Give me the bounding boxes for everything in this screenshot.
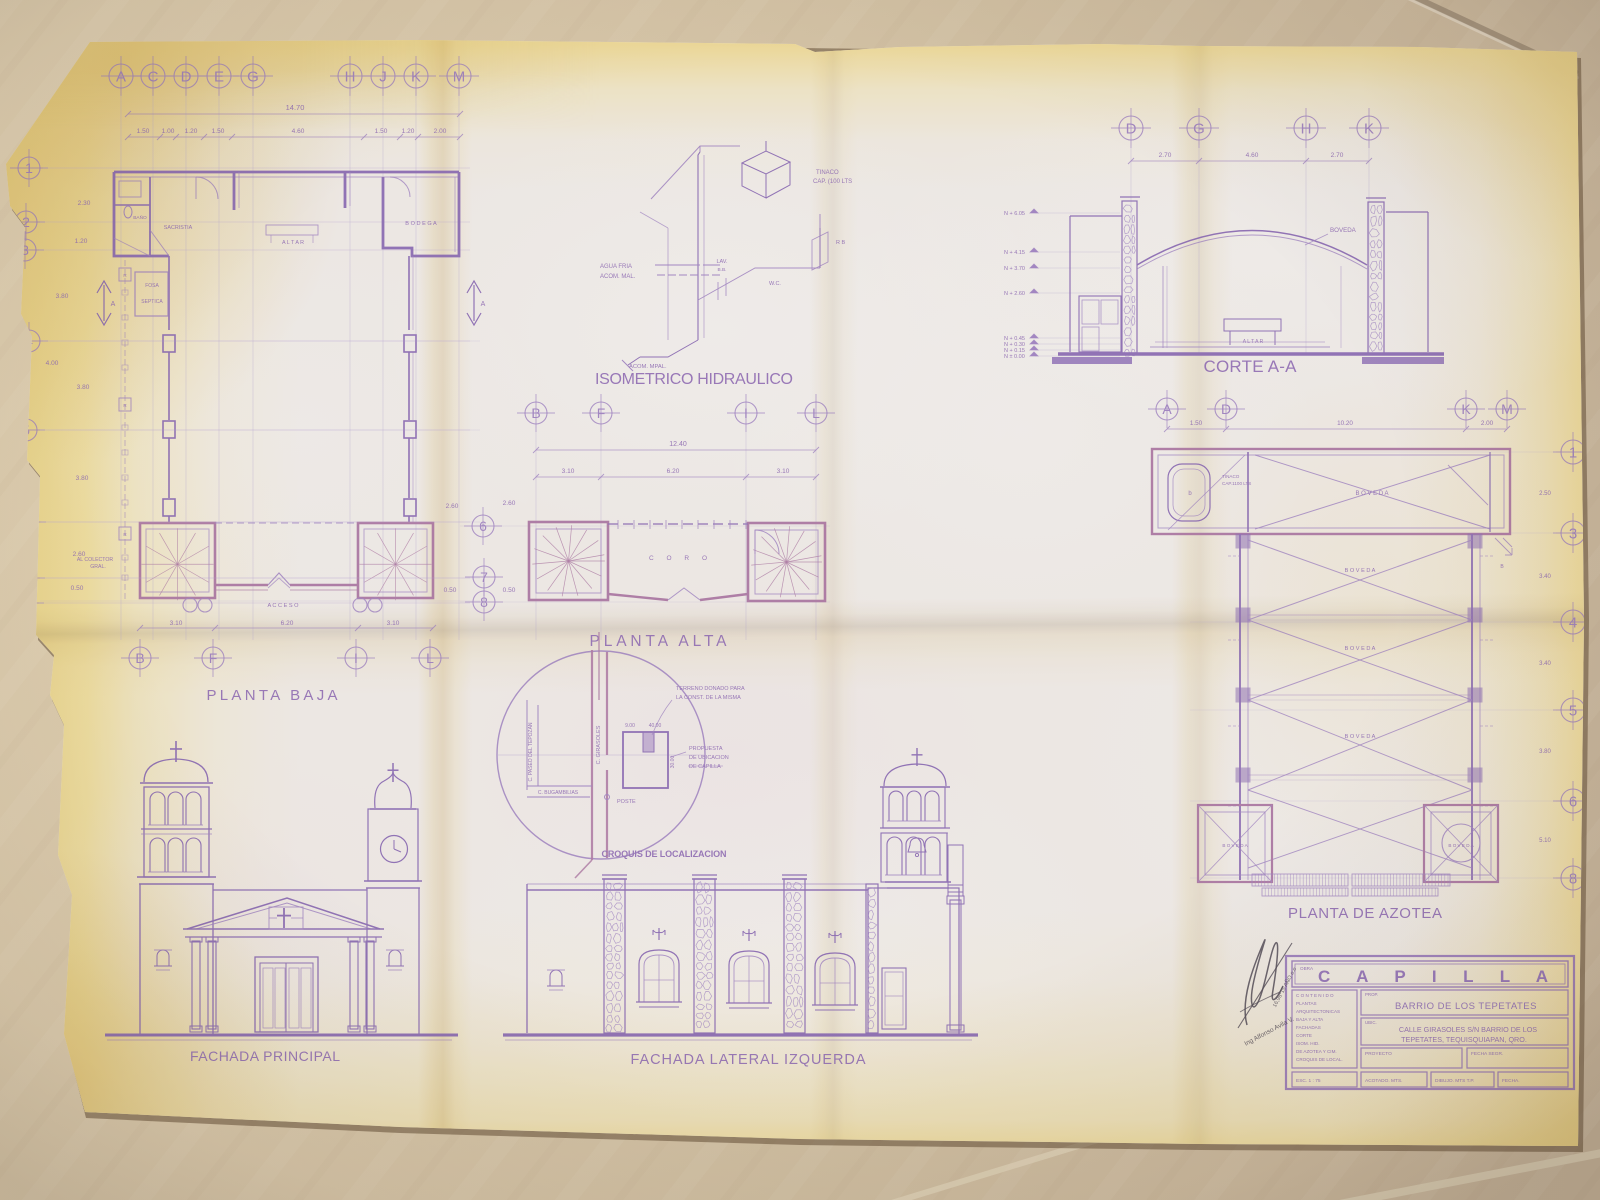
svg-text:C. GIRASOLES: C. GIRASOLES [596, 725, 602, 764]
svg-text:C O N T E N I D O: C O N T E N I D O [1296, 993, 1334, 998]
svg-text:A: A [481, 301, 486, 308]
svg-text:PROP.: PROP. [1365, 992, 1378, 997]
svg-text:CAP. (100 LTS: CAP. (100 LTS [813, 179, 852, 185]
svg-text:B O D E G A: B O D E G A [405, 221, 437, 227]
svg-text:OBRA: OBRA [1300, 966, 1314, 971]
svg-text:2.50: 2.50 [1539, 491, 1551, 497]
svg-text:1.20: 1.20 [185, 128, 198, 135]
svg-text:3.10: 3.10 [777, 468, 790, 475]
svg-text:R B: R B [836, 240, 846, 246]
svg-text:3: 3 [1569, 525, 1577, 542]
svg-text:1.50: 1.50 [375, 128, 388, 135]
svg-text:N + 2.60: N + 2.60 [1004, 291, 1025, 297]
svg-text:CORTE A-A: CORTE A-A [1204, 357, 1298, 376]
svg-text:CROQUIS DE LOCALIZACION: CROQUIS DE LOCALIZACION [602, 849, 727, 859]
svg-text:B O V E D A: B O V E D A [1345, 568, 1376, 574]
svg-text:K: K [1364, 120, 1374, 137]
svg-text:TINACO: TINACO [1222, 474, 1240, 479]
svg-text:4.60: 4.60 [1246, 152, 1259, 159]
svg-text:2.60: 2.60 [503, 500, 516, 507]
svg-text:ESC. 1 : 75: ESC. 1 : 75 [1296, 1078, 1321, 1084]
svg-text:PLANTA ALTA: PLANTA ALTA [590, 633, 728, 650]
svg-text:6.20: 6.20 [281, 620, 294, 627]
svg-text:3.80: 3.80 [77, 384, 90, 391]
svg-text:A: A [111, 301, 116, 308]
svg-text:G: G [247, 68, 259, 85]
svg-text:TEPETATES, TEQUISQUIAPAN, QRO: TEPETATES, TEQUISQUIAPAN, QRO. [1401, 1035, 1527, 1044]
svg-text:8: 8 [1569, 870, 1577, 887]
svg-text:POSTE: POSTE [617, 799, 636, 805]
svg-text:3.40: 3.40 [1539, 574, 1551, 580]
svg-text:PLANTAS: PLANTAS [1296, 1001, 1317, 1006]
svg-text:1.50: 1.50 [212, 128, 225, 135]
svg-text:N + 3.70: N + 3.70 [1004, 266, 1025, 272]
svg-text:I: I [354, 650, 358, 666]
svg-text:K: K [411, 68, 421, 85]
svg-text:C A P I L L A: C A P I L L A [1318, 967, 1548, 986]
svg-text:FOSA: FOSA [145, 283, 159, 289]
svg-text:B O V E D A: B O V E D A [1448, 843, 1474, 848]
svg-text:LA CONST. DE LA MISMA: LA CONST. DE LA MISMA [676, 695, 741, 701]
svg-text:0.50: 0.50 [444, 587, 457, 594]
svg-text:2.70: 2.70 [1159, 152, 1172, 159]
svg-text:L: L [812, 405, 820, 421]
svg-text:N ± 0.00: N ± 0.00 [1004, 354, 1025, 360]
svg-text:C. PASEO DEL TEPOZAN: C. PASEO DEL TEPOZAN [528, 722, 534, 781]
svg-text:D: D [1126, 120, 1137, 137]
svg-text:B: B [531, 405, 540, 421]
svg-text:B O V E D A: B O V E D A [1345, 734, 1376, 740]
svg-text:C. BUGAMBILIAS: C. BUGAMBILIAS [538, 790, 579, 796]
svg-text:2.00: 2.00 [1481, 420, 1494, 427]
svg-text:FECHA SEGR.: FECHA SEGR. [1471, 1051, 1503, 1057]
svg-text:BOVEDA: BOVEDA [1330, 227, 1357, 234]
svg-text:PROYECTO: PROYECTO [1365, 1051, 1392, 1057]
svg-text:B.B.: B.B. [717, 267, 726, 273]
svg-text:CROQUIS DE LOCAL.: CROQUIS DE LOCAL. [1296, 1057, 1343, 1062]
svg-text:ARQUITECTONICAS: ARQUITECTONICAS [1296, 1009, 1340, 1014]
svg-text:4.60: 4.60 [292, 128, 305, 135]
svg-text:ACOM. MPAL.: ACOM. MPAL. [629, 364, 667, 370]
svg-text:CAP.1100 LTS: CAP.1100 LTS [1222, 481, 1251, 486]
svg-text:H: H [1301, 120, 1312, 137]
svg-text:A L T A R: A L T A R [282, 240, 304, 246]
svg-text:DIBUJO. MTS T.P.: DIBUJO. MTS T.P. [1435, 1078, 1474, 1084]
svg-text:b: b [1188, 491, 1192, 497]
svg-text:PROPUESTA: PROPUESTA [689, 746, 723, 752]
svg-text:K: K [1461, 401, 1471, 417]
svg-text:B: B [1500, 564, 1504, 570]
svg-text:R: R [123, 403, 127, 408]
svg-text:TERRENO DONADO PARA: TERRENO DONADO PARA [676, 686, 745, 692]
svg-text:M: M [453, 68, 466, 85]
svg-text:3.80: 3.80 [76, 475, 89, 482]
svg-text:1.50: 1.50 [1190, 420, 1203, 427]
svg-text:5.10: 5.10 [1539, 838, 1551, 844]
svg-text:ISOM. HID.: ISOM. HID. [1296, 1041, 1319, 1046]
svg-text:2.00: 2.00 [434, 128, 447, 135]
svg-text:CORTE: CORTE [1296, 1033, 1312, 1038]
svg-text:3.80: 3.80 [56, 293, 69, 300]
svg-text:W.C.: W.C. [769, 281, 781, 287]
svg-text:R: R [123, 273, 127, 278]
svg-text:A: A [116, 68, 126, 85]
svg-text:BAÑO: BAÑO [133, 214, 147, 221]
svg-text:1.20: 1.20 [402, 128, 415, 135]
svg-text:FACHADA LATERAL IZQUERDA: FACHADA LATERAL IZQUERDA [631, 1052, 866, 1068]
svg-text:D: D [1221, 401, 1231, 417]
svg-text:DE UBICACION: DE UBICACION [689, 755, 729, 761]
svg-text:DE CAPILLA: DE CAPILLA [689, 764, 721, 770]
svg-text:M: M [1501, 401, 1513, 417]
svg-text:3.10: 3.10 [170, 620, 183, 627]
svg-text:A: A [1162, 401, 1172, 417]
svg-text:1: 1 [1569, 444, 1577, 461]
svg-text:10.20: 10.20 [1337, 420, 1353, 427]
svg-text:G: G [1193, 120, 1205, 137]
svg-text:F: F [209, 650, 218, 666]
svg-text:AL COLECTOR: AL COLECTOR [77, 557, 114, 563]
svg-text:1: 1 [25, 160, 33, 176]
svg-text:BARRIO DE LOS TEPETATES: BARRIO DE LOS TEPETATES [1395, 1001, 1537, 1012]
svg-text:UBIC.: UBIC. [1365, 1020, 1377, 1025]
svg-text:4.00: 4.00 [46, 360, 59, 367]
svg-text:B O V E D A: B O V E D A [1345, 646, 1376, 652]
svg-text:B O V E D A: B O V E D A [1222, 843, 1248, 848]
svg-text:LAV.: LAV. [716, 259, 727, 265]
svg-text:D: D [181, 68, 192, 85]
svg-text:B O V E D A: B O V E D A [1355, 491, 1388, 497]
svg-text:AGUA FRIA: AGUA FRIA [600, 264, 632, 270]
svg-text:A C C E S O: A C C E S O [267, 603, 299, 609]
svg-text:PLANTA BAJA: PLANTA BAJA [207, 687, 338, 704]
svg-text:N + 6.05: N + 6.05 [1004, 211, 1025, 217]
svg-text:E: E [214, 68, 224, 85]
svg-text:L: L [426, 650, 434, 666]
svg-text:30.00: 30.00 [670, 756, 676, 769]
svg-text:ACOTADO. MTS.: ACOTADO. MTS. [1365, 1078, 1403, 1084]
svg-text:GRAL.: GRAL. [90, 564, 106, 570]
svg-text:9.00: 9.00 [625, 723, 635, 729]
svg-text:3.40: 3.40 [1539, 661, 1551, 667]
svg-text:6: 6 [1569, 793, 1577, 810]
svg-text:Ing Alfonso Avila V.: Ing Alfonso Avila V. [1243, 1016, 1295, 1048]
svg-text:B: B [135, 650, 144, 666]
svg-text:2.60: 2.60 [446, 503, 459, 510]
svg-text:4: 4 [1569, 614, 1577, 631]
svg-text:ISOMETRICO HIDRAULICO: ISOMETRICO HIDRAULICO [595, 371, 793, 388]
svg-text:PLANTA DE AZOTEA: PLANTA DE AZOTEA [1288, 905, 1442, 922]
svg-text:TINACO: TINACO [816, 170, 839, 176]
svg-text:C O R O: C O R O [649, 555, 707, 562]
svg-text:2.70: 2.70 [1331, 152, 1344, 159]
svg-text:1.50: 1.50 [137, 128, 150, 135]
svg-text:FACHADA PRINCIPAL: FACHADA PRINCIPAL [190, 1048, 340, 1064]
svg-text:5: 5 [1569, 702, 1577, 719]
svg-text:R: R [123, 532, 127, 537]
svg-text:6.20: 6.20 [667, 468, 680, 475]
svg-text:3.10: 3.10 [562, 468, 575, 475]
svg-text:1.00: 1.00 [162, 128, 175, 135]
svg-text:BAJA Y ALTA: BAJA Y ALTA [1296, 1017, 1324, 1022]
svg-text:SACRISTIA: SACRISTIA [164, 225, 193, 231]
svg-text:SEPTICA: SEPTICA [141, 299, 163, 305]
svg-text:3.80: 3.80 [1539, 749, 1551, 755]
svg-text:0.50: 0.50 [71, 585, 84, 592]
svg-text:C: C [148, 68, 159, 85]
svg-text:FACHADAS: FACHADAS [1296, 1025, 1321, 1030]
svg-text:F: F [597, 405, 606, 421]
svg-text:1.20: 1.20 [75, 238, 88, 245]
svg-text:H: H [345, 68, 356, 85]
svg-text:N + 4.15: N + 4.15 [1004, 250, 1025, 256]
svg-text:I: I [744, 405, 748, 421]
svg-text:3.10: 3.10 [387, 620, 400, 627]
svg-text:J: J [379, 68, 387, 85]
svg-text:0.50: 0.50 [503, 587, 516, 594]
svg-text:12.40: 12.40 [669, 441, 687, 448]
svg-text:14.70: 14.70 [286, 103, 305, 112]
svg-text:2.30: 2.30 [78, 200, 91, 207]
svg-text:FECHA.: FECHA. [1502, 1078, 1520, 1084]
svg-text:ACOM. MAL.: ACOM. MAL. [600, 274, 636, 280]
svg-text:CALLE GIRASOLES S/N BARRIO: CALLE GIRASOLES S/N BARRIO DE LOS [1399, 1025, 1537, 1034]
svg-text:7: 7 [480, 569, 488, 585]
svg-text:DE AZOTEA Y CIM.: DE AZOTEA Y CIM. [1296, 1049, 1337, 1054]
